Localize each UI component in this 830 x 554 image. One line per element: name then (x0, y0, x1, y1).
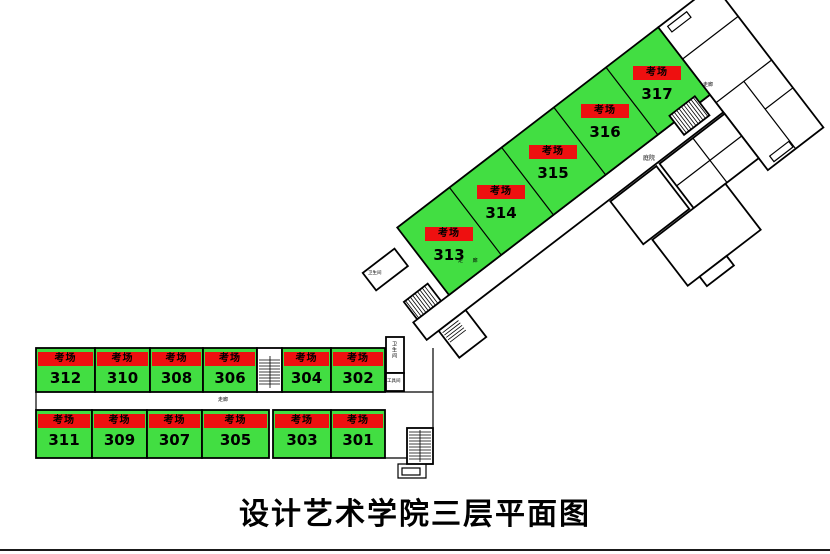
room-311-number: 311 (36, 432, 92, 448)
room-309-exam-bar: 考场 (94, 414, 145, 428)
room-301-exam-bar: 考场 (333, 414, 383, 428)
room-305-number: 305 (202, 432, 269, 448)
room-308-number: 308 (150, 370, 203, 386)
room-307-number: 307 (147, 432, 202, 448)
connector-restroom-label: 卫生间 (368, 271, 382, 276)
room-317-exam-bar: 考场 (633, 66, 681, 80)
room-309-number: 309 (92, 432, 147, 448)
room-308-exam-bar: 考场 (152, 352, 201, 366)
room-313-exam-bar: 考场 (425, 227, 473, 241)
room-310-exam-bar: 考场 (97, 352, 148, 366)
courtyard-label: 庭院 (634, 153, 664, 162)
mid-stairs-shaft-shape (257, 348, 282, 392)
room-306-exam-bar: 考场 (205, 352, 255, 366)
room-303-exam-bar: 考场 (275, 414, 329, 428)
room-312-number: 312 (36, 370, 95, 386)
corridor-lower-label: 走廊 (218, 397, 228, 403)
room-307-exam-bar: 考场 (149, 414, 200, 428)
connector-room-shape (363, 249, 408, 291)
room-310-number: 310 (95, 370, 150, 386)
diagonal-wing-group (354, 0, 830, 447)
room-314-number: 314 (477, 205, 525, 221)
room-315-number: 315 (529, 165, 577, 181)
room-316-number: 316 (581, 124, 629, 140)
room-302-number: 302 (331, 370, 385, 386)
room-316-exam-bar: 考场 (581, 104, 629, 118)
room-304-exam-bar: 考场 (284, 352, 329, 366)
corridor-upper-label: 走廊 (703, 82, 713, 88)
room-312-exam-bar: 考场 (38, 352, 93, 366)
room-317-number: 317 (633, 86, 681, 102)
room-314-exam-bar: 考场 (477, 185, 525, 199)
room-304-number: 304 (282, 370, 331, 386)
right-stairs-foot (398, 464, 433, 478)
room-305-exam-bar: 考场 (204, 414, 267, 428)
floor-plan-canvas: 考场 313 考场 314 考场 315 考场 316 考场 317 考场 31… (0, 0, 830, 554)
room-303-number: 303 (273, 432, 331, 448)
plan-title: 设计艺术学院三层平面图 (0, 489, 830, 533)
room-302-exam-bar: 考场 (333, 352, 383, 366)
toolroom-label: 工具间 (387, 379, 401, 384)
corridor-diagonal-label: 走 廊 (458, 258, 482, 264)
right-stairs-door (402, 468, 420, 475)
restroom-vertical-label: 卫生间 (391, 341, 397, 371)
room-306-number: 306 (203, 370, 257, 386)
room-315-exam-bar: 考场 (529, 145, 577, 159)
room-301-number: 301 (331, 432, 385, 448)
bottom-rule (0, 549, 830, 551)
room-311-exam-bar: 考场 (38, 414, 90, 428)
